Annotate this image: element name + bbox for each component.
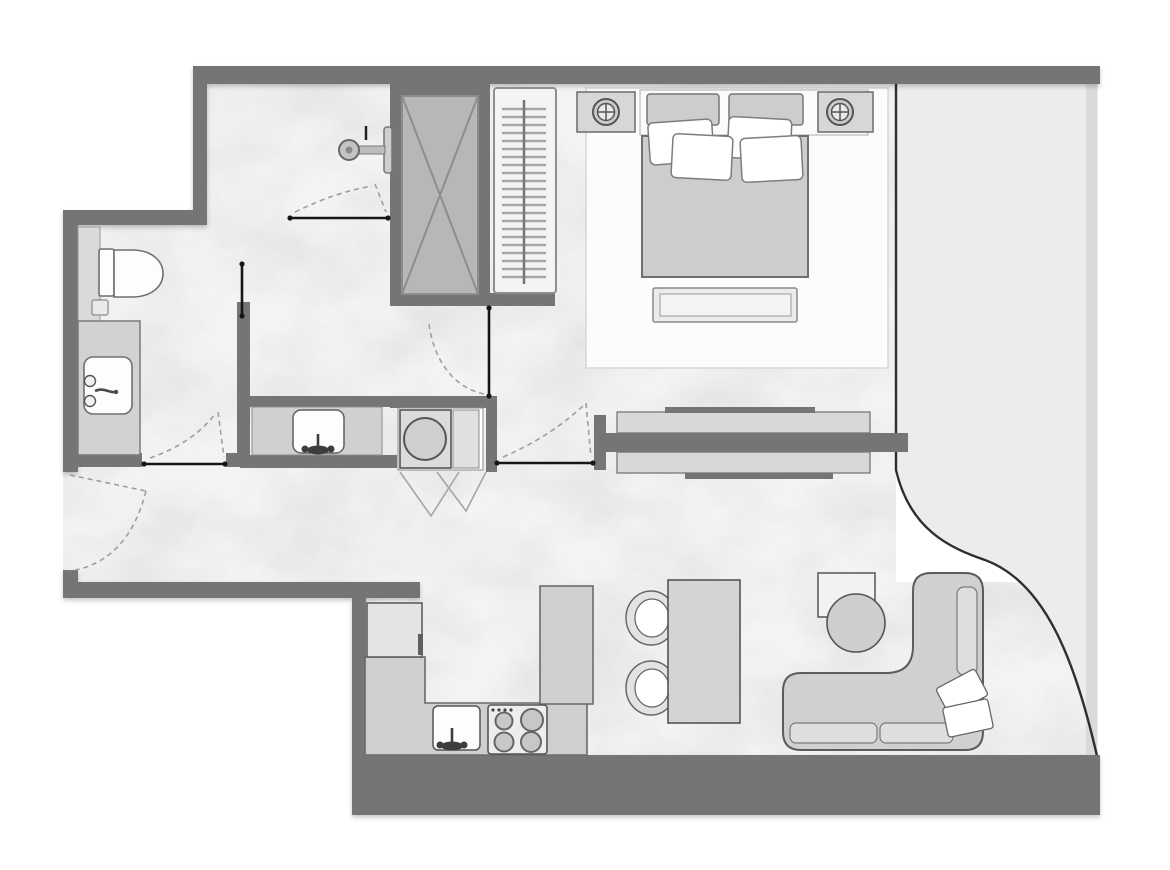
tv-partition-pier	[594, 415, 606, 470]
kitchen-faucet-handle	[437, 742, 444, 749]
washer-drum	[404, 418, 446, 460]
hob-knob	[509, 708, 512, 711]
wall-shower-left	[193, 66, 207, 225]
tv-partition-wall	[600, 433, 908, 452]
laundry-faucet-base	[307, 446, 329, 455]
burner	[496, 713, 513, 730]
nightstand-with-lamp-right	[818, 92, 873, 132]
wall-washer-jamb	[486, 396, 497, 472]
laundry-faucet-handle	[302, 446, 309, 453]
burner	[521, 732, 541, 752]
wall-bathroom-top	[63, 210, 207, 225]
faucet-handle	[85, 396, 96, 407]
floor-plan-page	[0, 0, 1170, 870]
shower-rose-center	[346, 147, 353, 154]
wall-bathroom-divider	[237, 302, 250, 463]
wall-laundry-counter-top	[240, 396, 390, 407]
pillow	[671, 133, 733, 180]
wall-washer-top	[390, 396, 497, 408]
wall-bottom-band	[352, 755, 1100, 815]
sofa-cushion	[957, 587, 977, 675]
washer-side-panel	[453, 410, 479, 468]
tv-screen-living-side	[685, 473, 833, 479]
faucet-tip	[114, 390, 118, 394]
floor-plan-canvas	[0, 0, 1170, 870]
burner	[521, 709, 543, 731]
round-pouf	[827, 594, 885, 652]
wall-left-upper	[63, 210, 78, 472]
sofa-cushion	[790, 723, 877, 743]
media-cabinet-bedroom-side	[617, 412, 870, 433]
toilet-tank	[99, 249, 114, 296]
pillow	[740, 135, 803, 182]
tv-screen-bedroom-side	[665, 407, 815, 413]
hob-knob	[491, 708, 494, 711]
fridge	[367, 603, 422, 657]
nightstand-with-lamp-left	[577, 92, 635, 132]
kitchen-faucet-handle	[461, 742, 468, 749]
kitchen-faucet-base	[441, 742, 463, 751]
tv-partition-with-cabinets	[594, 407, 908, 479]
hob-knob	[503, 708, 506, 711]
tall-cabinet	[540, 586, 593, 704]
wall-hallway-bottom	[63, 582, 420, 598]
wall-top	[193, 66, 1100, 84]
media-cabinet-living-side	[617, 452, 870, 473]
dining-table	[668, 580, 740, 723]
wall-laundry-counter-bottom	[240, 455, 397, 468]
bench-cushion	[660, 294, 791, 316]
hob-knob	[497, 708, 500, 711]
hob-4-burners	[488, 705, 547, 754]
balcony-edge-strip	[1086, 84, 1097, 756]
foot-bench	[653, 288, 797, 322]
wardrobe-with-hangers	[494, 88, 556, 293]
faucet-handle	[85, 376, 96, 387]
laundry-faucet-handle	[328, 446, 335, 453]
sofa-cushion	[880, 723, 953, 743]
service-shaft	[402, 96, 478, 294]
toilet-bowl	[114, 250, 163, 297]
flush-button	[92, 300, 108, 315]
burner	[495, 733, 514, 752]
vanity-sink	[78, 321, 140, 455]
fridge-handle	[418, 634, 423, 655]
